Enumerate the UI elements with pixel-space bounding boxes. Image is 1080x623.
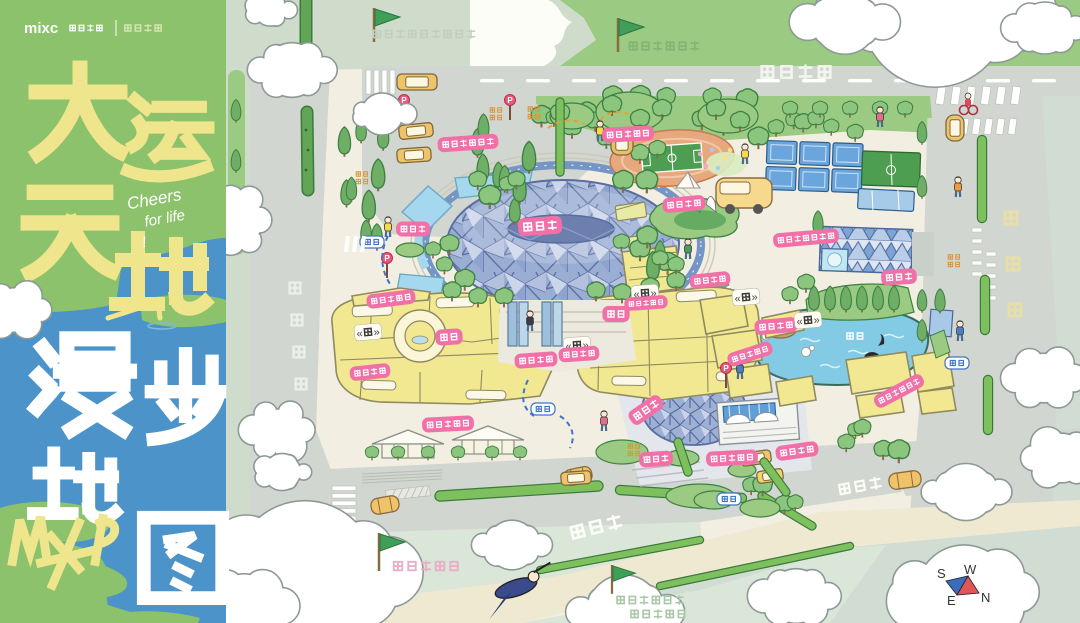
svg-text:P: P bbox=[723, 364, 729, 373]
svg-text:N: N bbox=[981, 590, 990, 605]
svg-text:P: P bbox=[507, 96, 513, 105]
svg-text:P: P bbox=[384, 254, 390, 263]
svg-text:W: W bbox=[964, 562, 977, 577]
svg-text:«: « bbox=[356, 328, 363, 340]
svg-text:mixc: mixc bbox=[24, 20, 58, 37]
svg-text:S: S bbox=[937, 566, 946, 581]
svg-text:E: E bbox=[947, 593, 956, 608]
svg-text:»: » bbox=[751, 291, 758, 303]
svg-text:«: « bbox=[734, 293, 741, 305]
svg-text:«: « bbox=[796, 316, 803, 328]
svg-text:»: » bbox=[373, 326, 380, 338]
svg-text:»: » bbox=[813, 314, 820, 326]
